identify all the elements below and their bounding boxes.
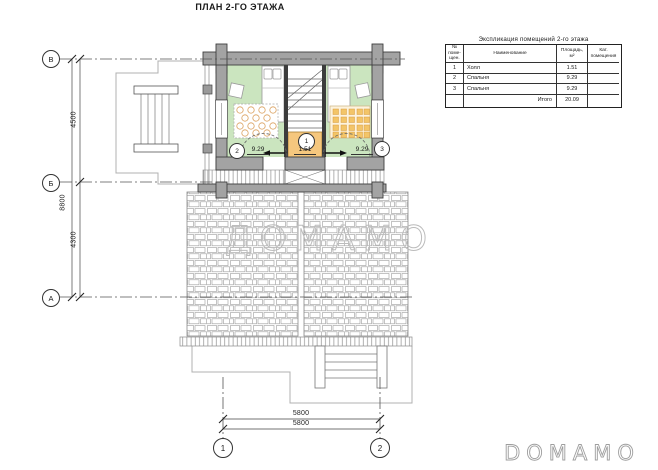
col-header-name: Наименование [464, 45, 557, 63]
axis-marker-2: 2 [370, 438, 390, 458]
total-area: 20.09 [557, 95, 588, 107]
watermark-center: ДОМАМО [225, 219, 435, 259]
room-2-tag: 2 [229, 143, 245, 159]
room-3-area: 9.29 [351, 146, 373, 155]
col-header-area: Площадь, м² [557, 45, 588, 63]
dim-8800: 8800 [60, 188, 67, 218]
page-title: ПЛАН 2-ГО ЭТАЖА [160, 2, 320, 12]
explication-title: Экспликация помещений 2-го этажа [445, 36, 622, 43]
dim-4300: 4300 [71, 225, 78, 255]
explication-table: Экспликация помещений 2-го этажа № поме-… [445, 36, 622, 108]
balcony-band [203, 170, 384, 184]
room-2-area: 9.29 [247, 146, 269, 155]
roof-slopes [180, 192, 412, 346]
exterior-stair [315, 346, 387, 388]
dim-5800-b: 5800 [286, 420, 316, 427]
dim-5800-a: 5800 [286, 410, 316, 417]
table-row: 2 Спальня 9.29 [446, 74, 621, 85]
total-label: Итого [464, 95, 557, 107]
table-total-row: Итого 20.09 [446, 95, 621, 107]
floor-plan-page: ДОМАМО DOMAMO ПЛАН 2-ГО ЭТАЖА Экспликаци… [0, 0, 658, 470]
room-3-tag: 3 [374, 141, 390, 157]
axis-marker-a: А [42, 289, 60, 307]
axis-marker-v: В [42, 50, 60, 68]
axis-marker-b: Б [42, 174, 60, 192]
table-row: 1 Холл 1.51 [446, 63, 621, 74]
left-porch-railing [134, 61, 212, 184]
room-1-area: 1.51 [294, 146, 316, 155]
axis-marker-1: 1 [213, 438, 233, 458]
col-header-number: № поме- щен. [446, 45, 464, 63]
explication-header-row: № поме- щен. Наименование Площадь, м² Ка… [446, 45, 621, 63]
dim-4500: 4500 [71, 105, 78, 135]
watermark-corner: DOMAMO [504, 441, 640, 465]
table-row: 3 Спальня 9.29 [446, 84, 621, 95]
col-header-category: Кат. помещения [588, 45, 619, 63]
